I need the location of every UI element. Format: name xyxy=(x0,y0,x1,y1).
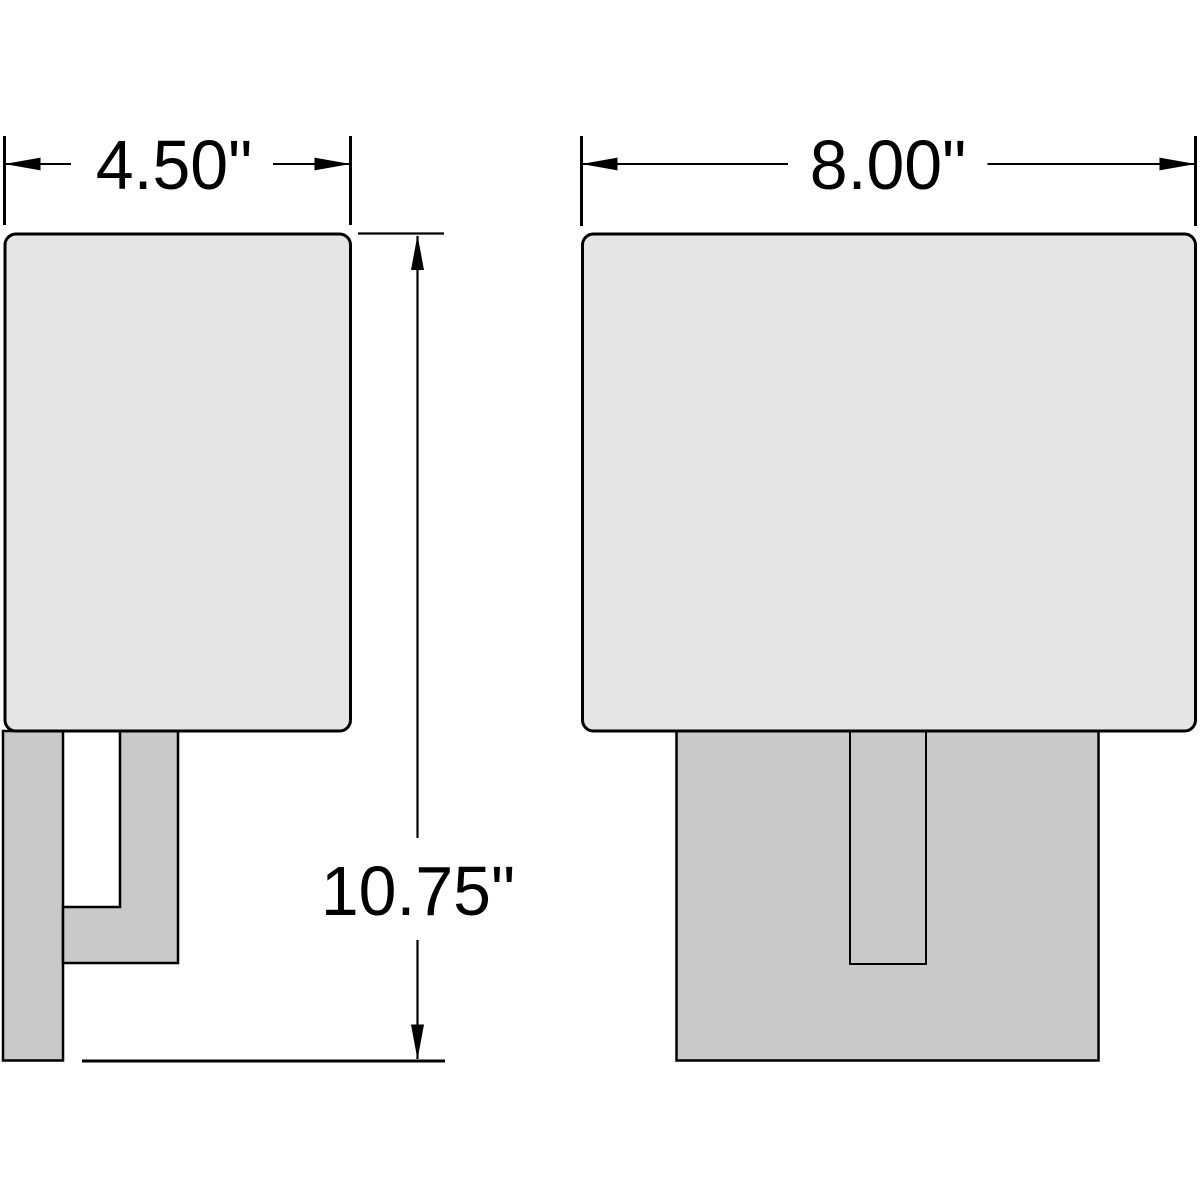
svg-text:10.75": 10.75" xyxy=(321,852,515,930)
svg-text:4.50": 4.50" xyxy=(96,126,253,204)
svg-text:8.00": 8.00" xyxy=(810,126,967,204)
